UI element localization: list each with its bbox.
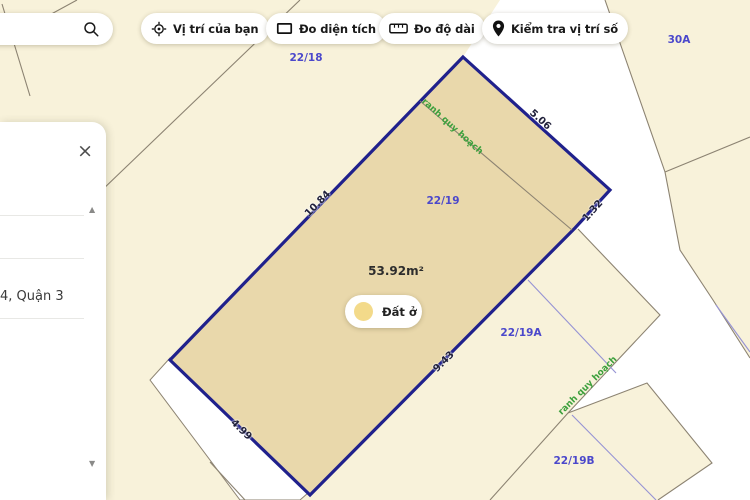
panel-divider — [0, 215, 84, 216]
my-location-button[interactable]: Vị trí của bạn — [141, 13, 269, 44]
close-icon[interactable]: × — [77, 142, 93, 161]
search-icon[interactable] — [82, 20, 100, 38]
measure-length-label: Đo độ dài — [414, 22, 475, 36]
crosshair-icon — [151, 21, 167, 37]
scroll-down-arrow[interactable]: ▼ — [89, 460, 95, 468]
check-digital-location-button[interactable]: Kiểm tra vị trí số — [482, 13, 628, 44]
ruler-icon — [389, 22, 408, 35]
land-use-chip-label: Đất ở — [382, 305, 417, 319]
my-location-label: Vị trí của bạn — [173, 22, 259, 36]
map-pin-icon — [492, 20, 505, 37]
measure-area-label: Đo diện tích — [299, 22, 376, 36]
scroll-up-arrow[interactable]: ▲ — [89, 206, 95, 214]
search-bar[interactable] — [0, 13, 113, 45]
measure-area-button[interactable]: Đo diện tích — [266, 13, 386, 44]
check-digital-location-label: Kiểm tra vị trí số — [511, 22, 618, 36]
area-rectangle-icon — [276, 21, 293, 36]
panel-list-item-text[interactable]: 4, Quận 3 — [0, 289, 64, 304]
land-use-color-dot — [354, 302, 373, 321]
land-use-chip: Đất ở — [345, 295, 422, 328]
map-canvas[interactable] — [0, 0, 750, 500]
panel-divider — [0, 318, 84, 319]
results-panel: × 4, Quận 3 ▲ ▼ — [0, 122, 106, 500]
measure-length-button[interactable]: Đo độ dài — [379, 13, 485, 44]
search-input[interactable] — [0, 12, 82, 46]
map-app: 22/18 30A 22/19A 22/19B 22/19 10.84 5.06… — [0, 0, 750, 500]
panel-divider — [0, 258, 84, 259]
